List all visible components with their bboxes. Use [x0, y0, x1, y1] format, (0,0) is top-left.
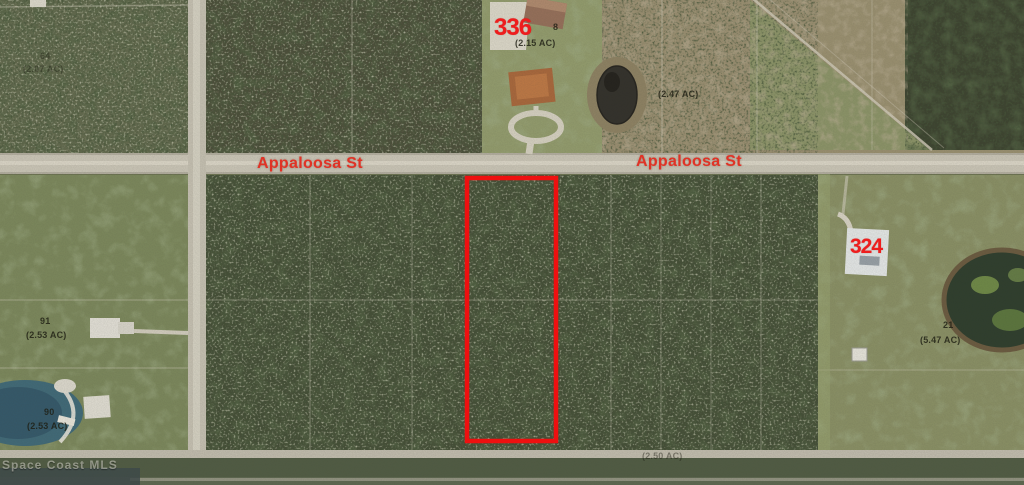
aerial-imagery — [0, 0, 1024, 485]
aerial-map: Appaloosa St Appaloosa St 336 324 64 (2.… — [0, 0, 1024, 485]
